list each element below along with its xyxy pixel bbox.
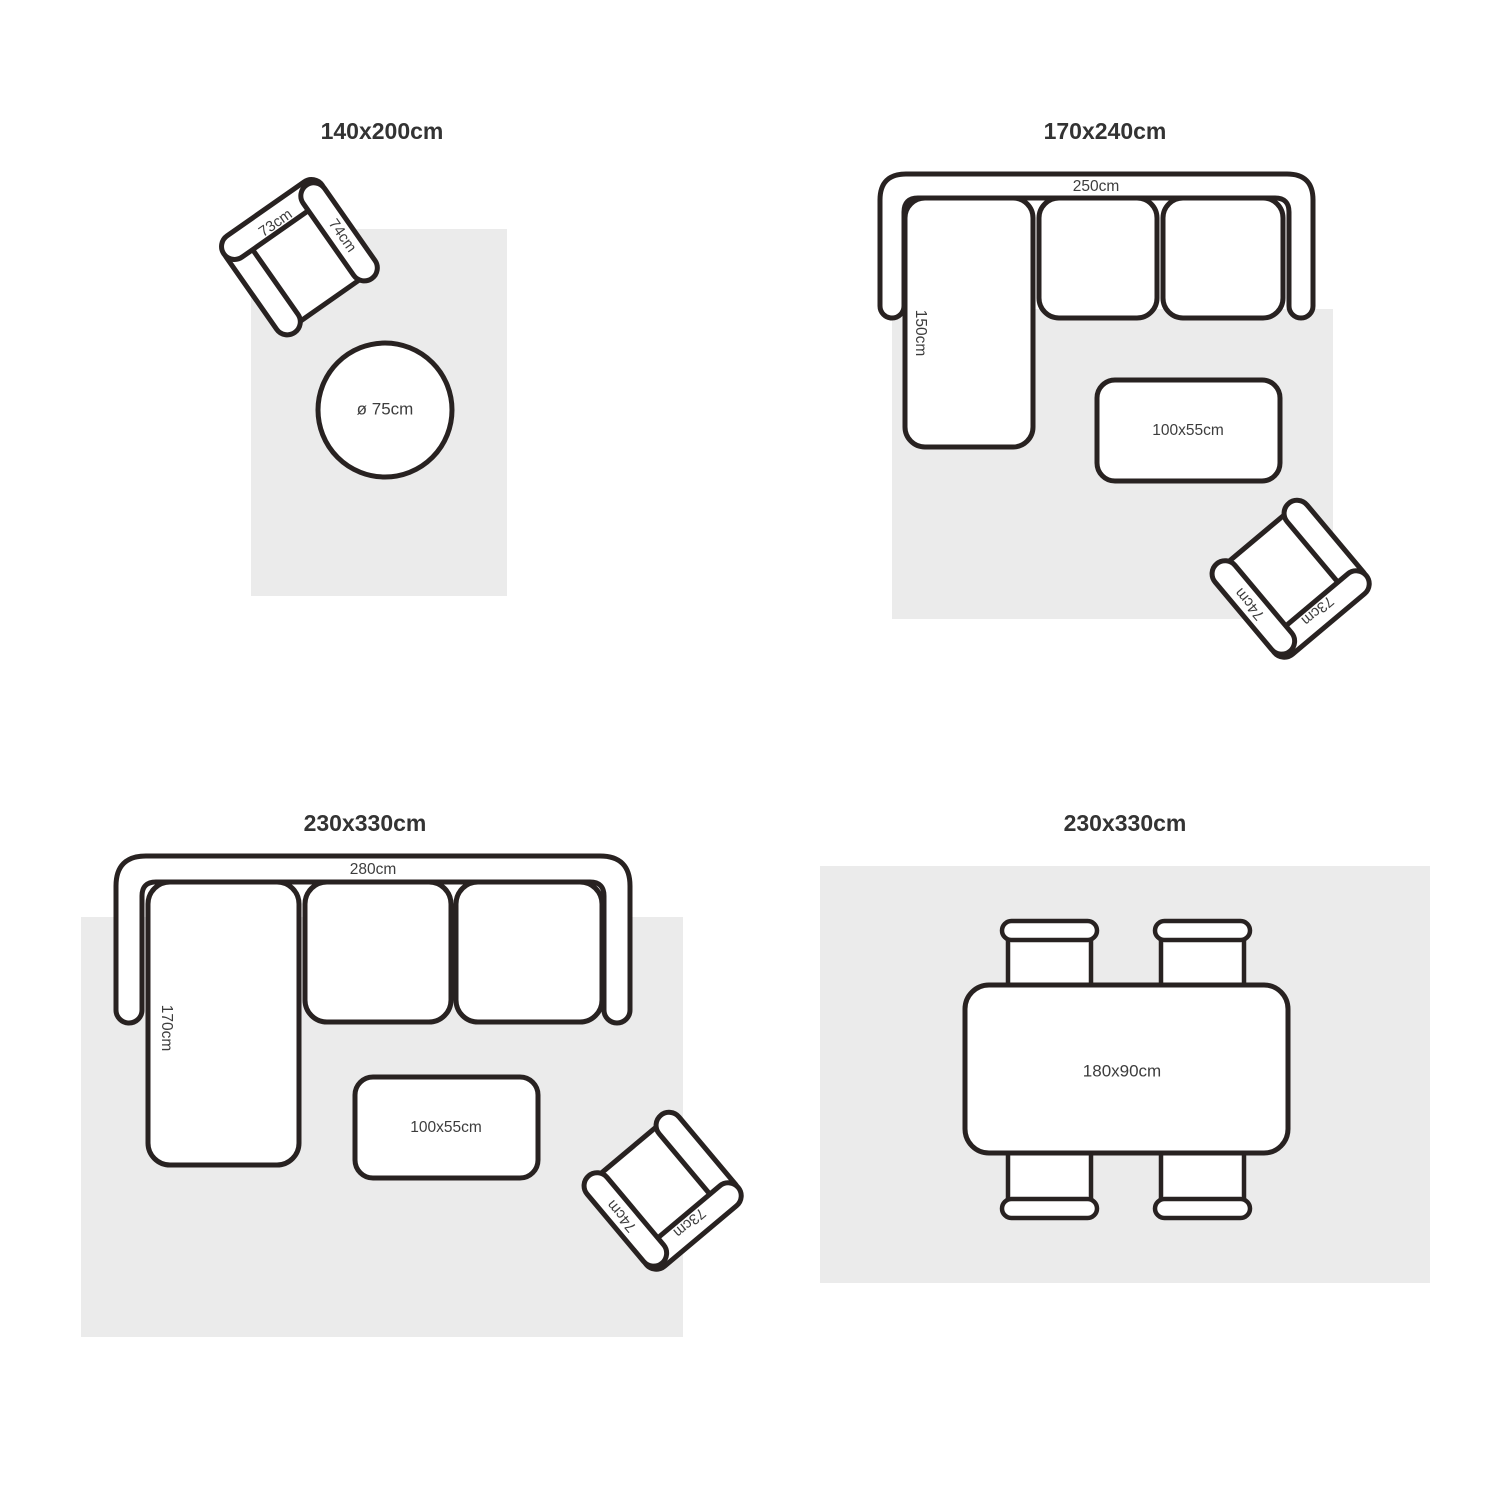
dining-chair-bottom-right: [1155, 1149, 1250, 1218]
dining-chair-top-left: [1002, 921, 1097, 990]
rug-size-title: 140x200cm: [321, 118, 444, 144]
quadrant-bottom-left: 230x330cm 280cm 170cm 100x55cm: [81, 810, 747, 1337]
sofa-depth-dimension: 170cm: [158, 1005, 175, 1052]
quadrant-top-right: 170x240cm 250cm 150cm 100x55cm: [880, 118, 1375, 662]
sofa-depth-dimension: 150cm: [912, 310, 929, 357]
rug-size-title: 230x330cm: [1064, 810, 1187, 836]
coffee-table-dimension: 100x55cm: [410, 1119, 482, 1136]
dining-chair-bottom-left: [1002, 1149, 1097, 1218]
quadrant-bottom-right: 230x330cm 180x90cm: [820, 810, 1430, 1283]
rug-size-guide-diagram: 73cm 74cm 140x200cm ø 75cm 170x240cm 250…: [0, 0, 1500, 1500]
sofa-width-dimension: 250cm: [1073, 178, 1120, 195]
sofa-cushion: [456, 882, 602, 1022]
dining-table-dimension: 180x90cm: [1083, 1061, 1161, 1080]
sofa-cushion: [305, 882, 451, 1022]
round-table-dimension: ø 75cm: [357, 399, 414, 418]
rug-size-guide-page: 73cm 74cm 140x200cm ø 75cm 170x240cm 250…: [0, 0, 1500, 1500]
sofa-width-dimension: 280cm: [350, 861, 397, 878]
rug-size-title: 170x240cm: [1044, 118, 1167, 144]
dining-chair-top-right: [1155, 921, 1250, 990]
sofa-cushion: [1039, 198, 1157, 318]
sofa-cushion: [1163, 198, 1283, 318]
rug-size-title: 230x330cm: [304, 810, 427, 836]
coffee-table-dimension: 100x55cm: [1152, 422, 1224, 439]
quadrant-top-left: 140x200cm ø 75cm: [216, 118, 507, 596]
